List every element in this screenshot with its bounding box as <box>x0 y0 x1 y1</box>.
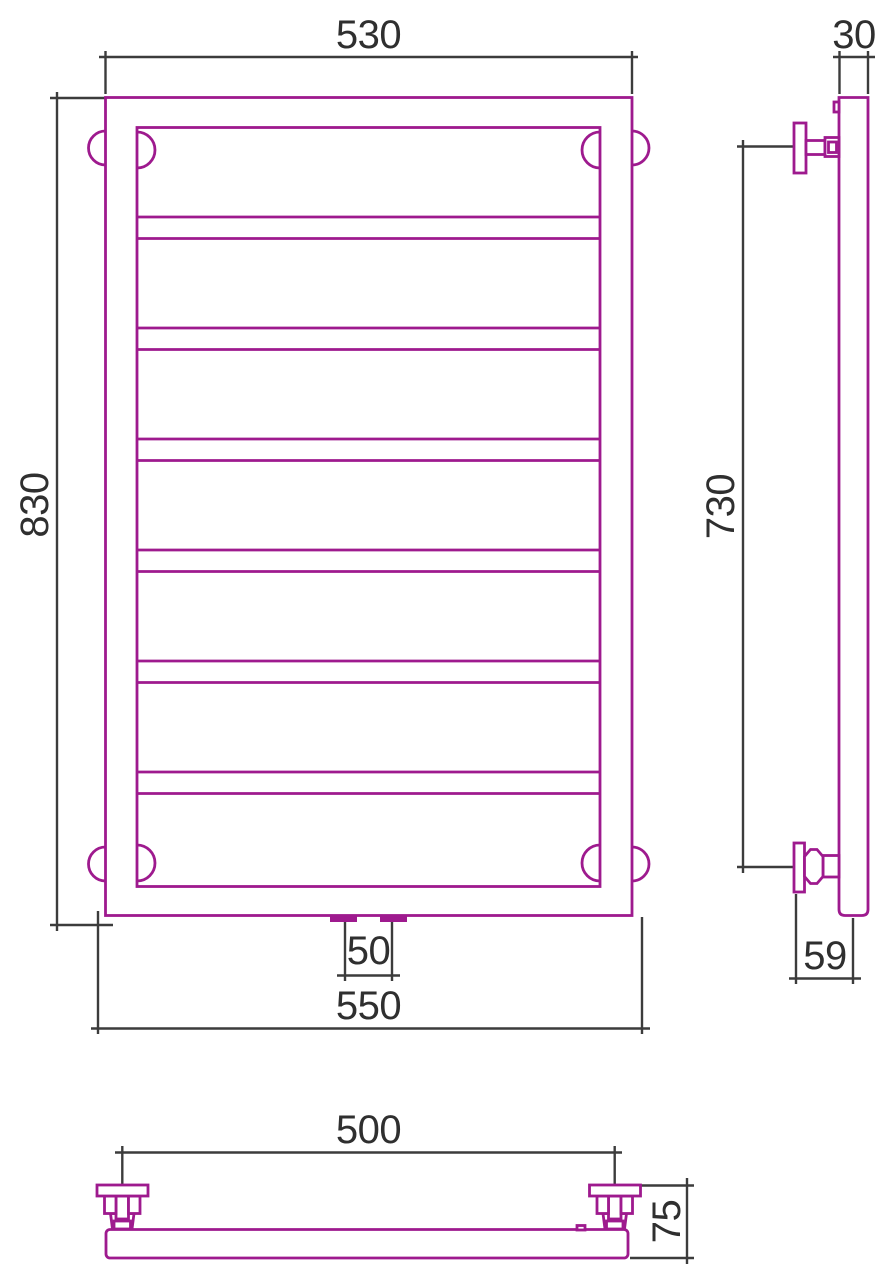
dim-bracket-span: 730 <box>699 140 794 873</box>
bracket-ear <box>129 1196 141 1214</box>
dimension-label-59: 59 <box>803 934 847 978</box>
dimension-label-830: 830 <box>13 472 57 537</box>
bracket-foot <box>114 1221 131 1229</box>
profile-tube <box>839 98 868 916</box>
bracket-arc-bottom-right-outer <box>632 847 649 881</box>
dimension-label-530: 530 <box>336 13 401 57</box>
bottom-view-bracket-left <box>97 1185 148 1229</box>
bracket-column <box>116 1196 129 1219</box>
side-view <box>794 98 868 916</box>
connection-stub-right <box>380 916 407 923</box>
dim-connection-spacing: 50 <box>337 919 400 981</box>
dim-front-width-top: 530 <box>99 13 638 94</box>
technical-drawing-page: 530 830 550 50 30 730 59 <box>0 0 891 1280</box>
connection-stub-left <box>330 916 357 923</box>
dimension-label-550: 550 <box>336 984 401 1028</box>
dim-bracket-spacing: 500 <box>115 1108 622 1184</box>
bracket-stem <box>823 856 839 878</box>
bracket-arc-top-right-outer <box>632 131 649 165</box>
dimension-label-500: 500 <box>336 1108 401 1152</box>
bottom-view <box>97 1185 641 1258</box>
dim-side-depth: 30 <box>832 13 876 94</box>
dimension-label-75: 75 <box>645 1200 689 1244</box>
towel-rail-drawing: 530 830 550 50 30 730 59 <box>0 0 891 1280</box>
bottom-view-bracket-right <box>590 1185 641 1229</box>
front-view <box>89 98 650 923</box>
bracket-arc-bottom-left-outer <box>89 847 106 881</box>
bracket-flange <box>97 1185 148 1196</box>
bracket-flange <box>794 843 805 892</box>
dim-front-height: 830 <box>13 92 113 931</box>
air-vent-top <box>577 1226 585 1231</box>
bracket-arc-top-left-outer <box>89 131 106 165</box>
bracket-flange <box>794 123 806 173</box>
air-vent <box>834 102 839 112</box>
bracket-ear <box>105 1196 117 1214</box>
bracket-stem <box>806 141 825 155</box>
dimension-label-30: 30 <box>832 13 876 57</box>
dimension-label-730: 730 <box>699 474 743 539</box>
upper-wall-bracket <box>794 123 839 173</box>
bottom-tube <box>106 1230 628 1259</box>
lower-wall-bracket <box>794 843 839 892</box>
dimension-label-50: 50 <box>347 929 391 973</box>
bracket-hex-nut <box>805 850 824 884</box>
